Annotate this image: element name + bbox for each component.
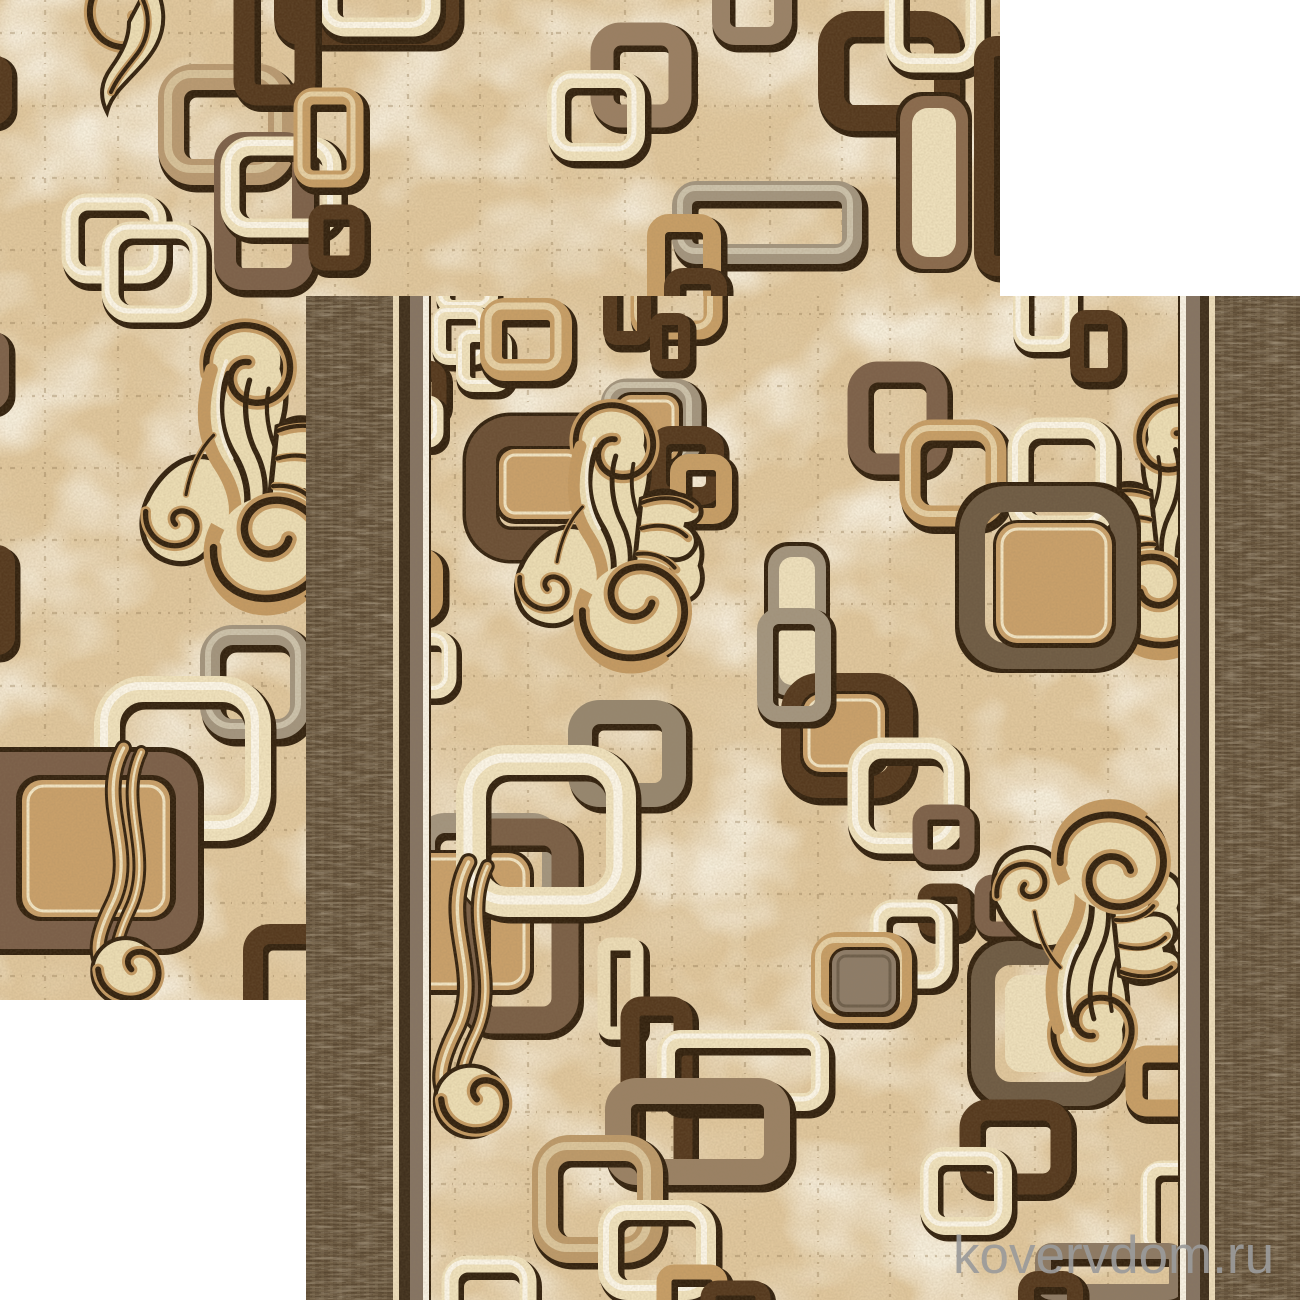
svg-text:kovervdom.ru: kovervdom.ru bbox=[953, 1226, 1274, 1285]
